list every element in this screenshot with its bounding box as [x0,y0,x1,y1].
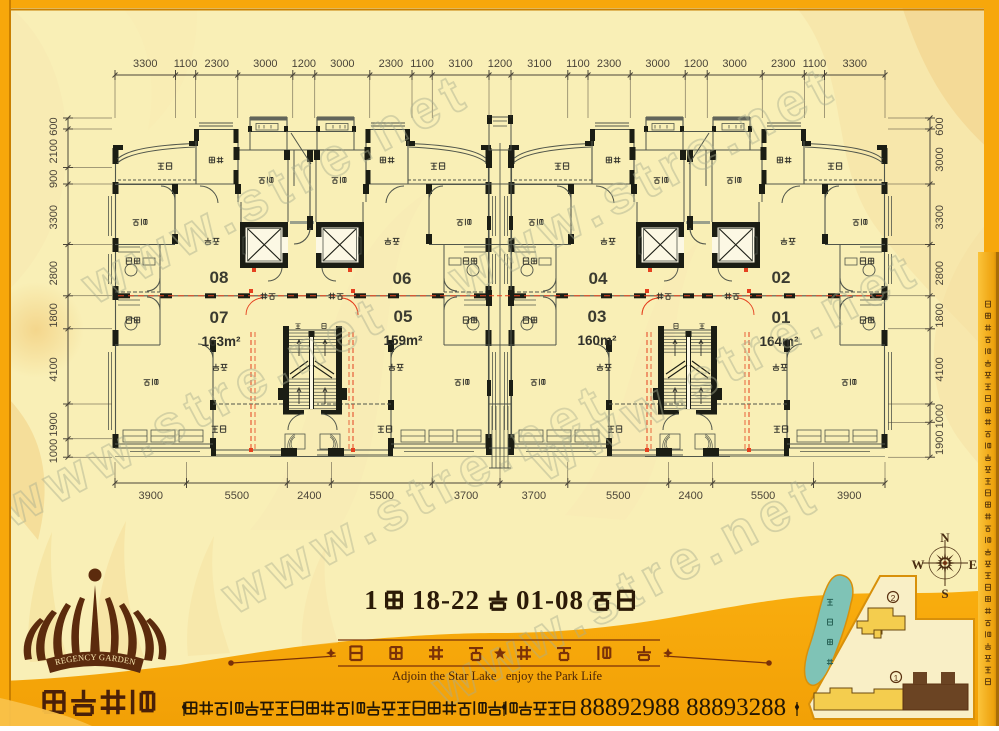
svg-text:06: 06 [393,269,412,288]
svg-text:3000: 3000 [253,58,277,70]
svg-text:S: S [941,586,948,601]
svg-text:04: 04 [589,269,608,288]
svg-text:900: 900 [48,170,60,188]
svg-text:2: 2 [891,593,896,603]
svg-text:600: 600 [934,117,946,135]
svg-text:3000: 3000 [330,58,354,70]
svg-text:3300: 3300 [133,58,157,70]
svg-text:2100: 2100 [48,139,60,163]
svg-text:3300: 3300 [843,58,867,70]
svg-text:3000: 3000 [645,58,669,70]
svg-text:2400: 2400 [678,490,702,502]
svg-text:2800: 2800 [934,261,946,285]
svg-text:02: 02 [772,268,791,287]
svg-text:5500: 5500 [225,490,249,502]
svg-text:3000: 3000 [934,147,946,171]
svg-text:08: 08 [210,268,229,287]
svg-text:1200: 1200 [488,58,512,70]
svg-text:160m²: 160m² [577,333,617,348]
svg-text:3700: 3700 [522,490,546,502]
svg-text:2800: 2800 [48,261,60,285]
svg-text:4100: 4100 [934,357,946,381]
svg-text:1000: 1000 [934,404,946,428]
svg-text:3100: 3100 [527,58,551,70]
svg-text:18-22: 18-22 [412,585,480,615]
svg-text:1100: 1100 [410,58,434,70]
svg-text:3000: 3000 [722,58,746,70]
svg-text:3300: 3300 [934,205,946,229]
svg-text:W: W [912,557,925,572]
svg-text:1: 1 [894,673,899,683]
svg-text:1: 1 [364,585,378,615]
svg-text:3900: 3900 [837,490,861,502]
svg-text:5500: 5500 [606,490,630,502]
svg-text:1100: 1100 [174,58,198,70]
svg-text:1900: 1900 [934,431,946,455]
svg-text:2300: 2300 [597,58,621,70]
svg-text:1800: 1800 [48,303,60,327]
svg-text:1100: 1100 [566,58,590,70]
svg-text:88892988 88893288: 88892988 88893288 [580,694,786,721]
svg-text:E: E [969,557,978,572]
svg-text:2300: 2300 [205,58,229,70]
svg-text:05: 05 [394,307,413,326]
svg-text:1200: 1200 [684,58,708,70]
svg-text:1800: 1800 [934,303,946,327]
svg-text:3900: 3900 [139,490,163,502]
svg-text:Adjoin the Star Lake enjoy t: Adjoin the Star Lake enjoy the Park Life [392,669,602,683]
svg-text:1200: 1200 [292,58,316,70]
svg-text:2300: 2300 [379,58,403,70]
svg-text:2400: 2400 [297,490,321,502]
svg-text:07: 07 [210,308,229,327]
svg-text:N: N [940,530,950,545]
svg-text:163m²: 163m² [201,334,241,349]
svg-text:3300: 3300 [48,205,60,229]
svg-text:1900: 1900 [48,412,60,436]
svg-text:600: 600 [48,117,60,135]
svg-text:01-08: 01-08 [516,585,584,615]
svg-text:03: 03 [588,307,607,326]
svg-text:4100: 4100 [48,357,60,381]
